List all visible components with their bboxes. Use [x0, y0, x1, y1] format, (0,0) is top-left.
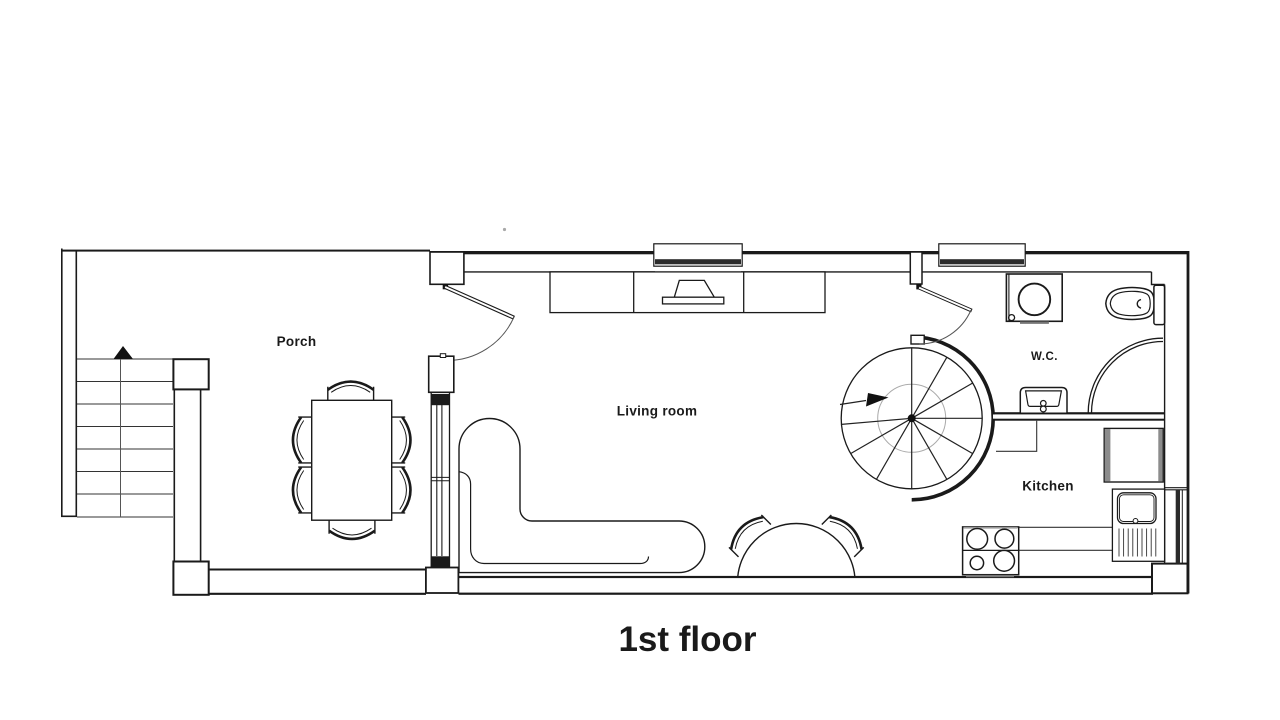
svg-text:Porch: Porch: [277, 334, 317, 349]
svg-text:1st floor: 1st floor: [618, 620, 756, 659]
svg-text:Kitchen: Kitchen: [1022, 479, 1074, 494]
svg-text:Living room: Living room: [617, 404, 698, 419]
svg-text:W.C.: W.C.: [1031, 351, 1058, 363]
